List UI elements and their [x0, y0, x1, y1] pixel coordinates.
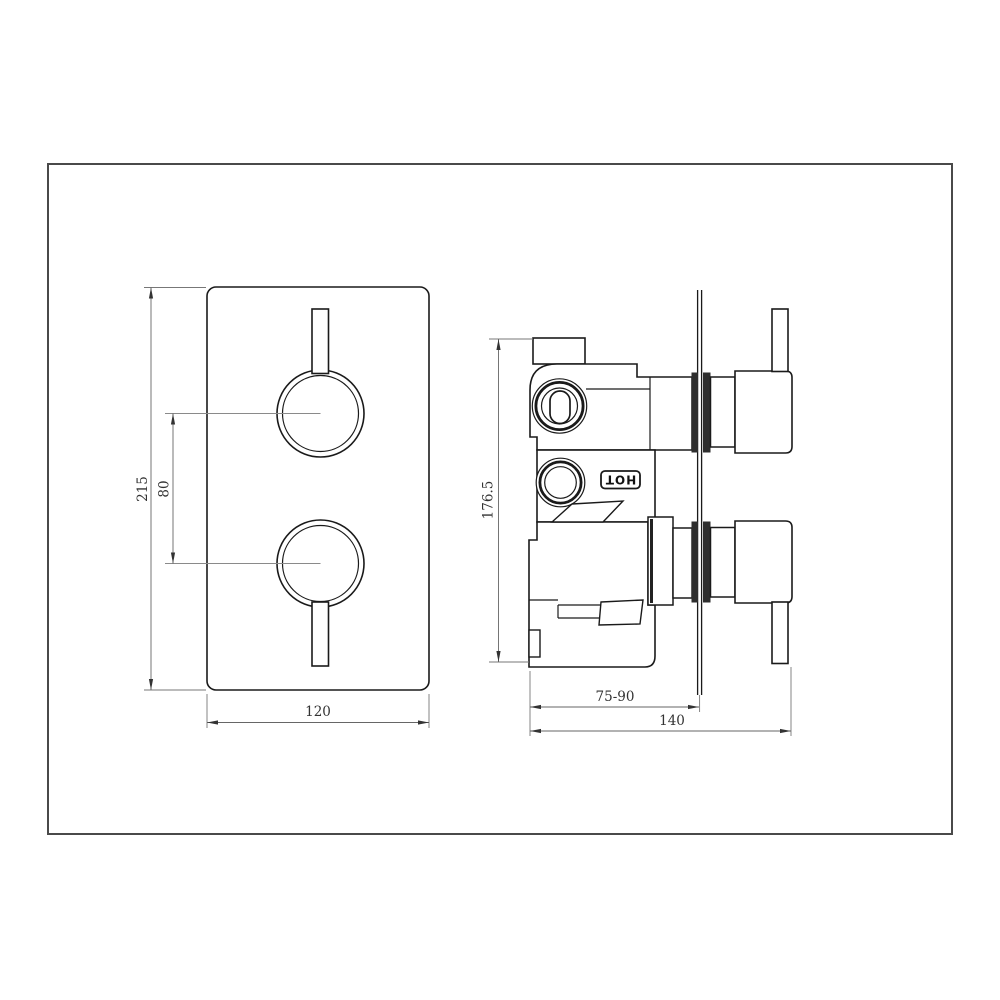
technical-drawing-page: 215 80 120 [0, 0, 1000, 1000]
top-knob-stem [711, 377, 736, 447]
top-flange-back [692, 373, 699, 453]
dim-label-80: 80 [157, 480, 173, 497]
top-lever-side [772, 309, 788, 372]
port2-outer-ring [536, 458, 585, 507]
bottom-knob-stem [711, 528, 736, 598]
dim-label-176-5: 176.5 [481, 481, 497, 520]
bottom-lever-side [772, 602, 788, 664]
lower-cartridge-inner [673, 528, 692, 598]
top-flange-front [703, 373, 711, 453]
body-lower-section [529, 522, 655, 667]
dim-label-75-90: 75-90 [596, 689, 635, 705]
bottom-flange-front [703, 522, 711, 603]
bottom-knob-side [735, 521, 792, 603]
shower-valve-technical-drawing: 215 80 120 [0, 0, 1000, 1000]
bottom-flange-back [692, 522, 699, 603]
top-knob-side [735, 371, 792, 453]
top-inlet-block [533, 338, 585, 364]
sheet-border [48, 164, 952, 834]
lower-chamfer-facet [599, 600, 643, 625]
dim-label-120: 120 [305, 704, 331, 720]
dim-label-140: 140 [659, 713, 685, 729]
top-lever-handle [312, 309, 329, 374]
bottom-lever-handle [312, 602, 329, 666]
dim-label-215: 215 [135, 476, 151, 502]
port1-slot [550, 391, 570, 424]
hot-label-text: HOT [605, 472, 636, 486]
bottom-outlet-stub [529, 630, 540, 657]
